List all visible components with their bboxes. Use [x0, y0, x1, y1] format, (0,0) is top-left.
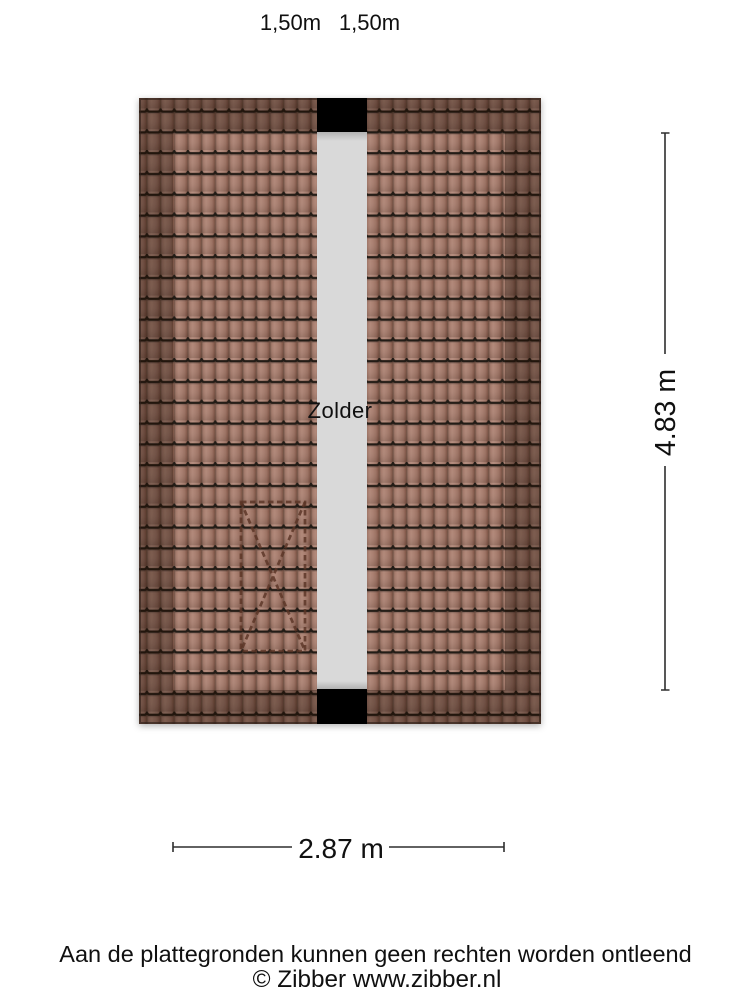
svg-text:Zolder: Zolder [308, 398, 373, 423]
svg-text:© Zibber www.zibber.nl: © Zibber www.zibber.nl [253, 966, 502, 993]
svg-text:4.83 m: 4.83 m [650, 369, 682, 456]
svg-text:1,50m: 1,50m [260, 10, 321, 35]
svg-text:Aan de plattegronden kunnen ge: Aan de plattegronden kunnen geen rechten… [59, 941, 691, 967]
svg-text:2.87 m: 2.87 m [298, 833, 384, 864]
svg-text:1,50m: 1,50m [339, 10, 400, 35]
